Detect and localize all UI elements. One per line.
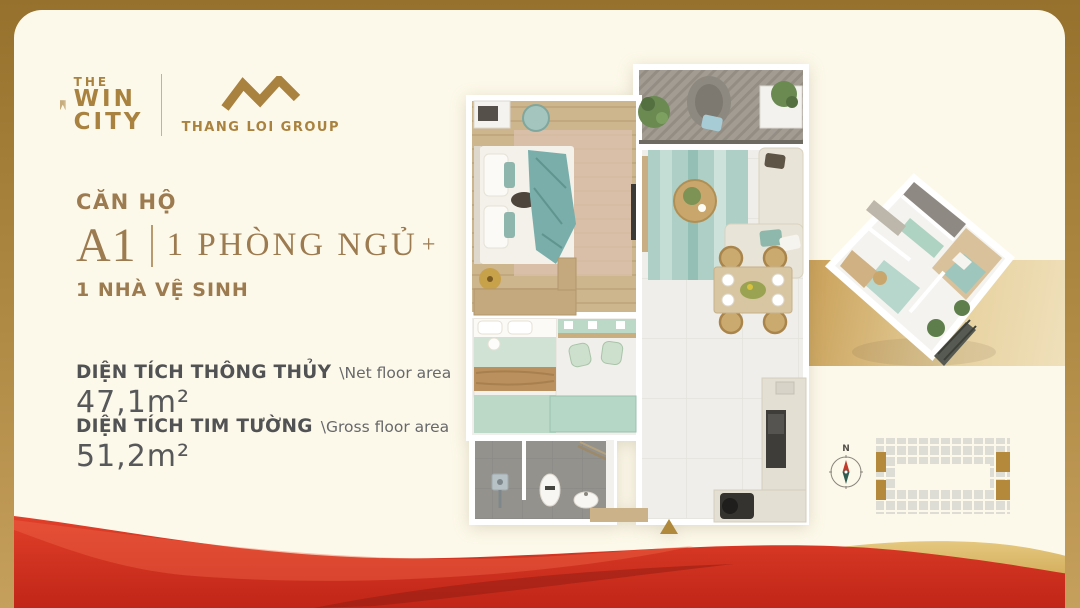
apartment-3d-view xyxy=(814,160,1029,378)
gross-area-value: 51,2m² xyxy=(76,439,449,474)
slide-background: THE WIN CITY THANG LOI GROUP CĂN HỘ A1 1… xyxy=(14,10,1065,608)
thang-loi-logo-text: THANG LOI GROUP xyxy=(182,120,340,135)
unit-bedroom-plus: + xyxy=(422,232,439,259)
net-area-value: 47,1m² xyxy=(76,385,451,420)
win-city-logo-icon xyxy=(60,66,66,144)
unit-category-label: CĂN HỘ xyxy=(76,190,438,214)
highlighted-unit xyxy=(876,480,886,500)
unit-bedroom-label: 1 PHÒNG NGỦ xyxy=(167,227,418,264)
gross-area-block: DIỆN TÍCH TIM TƯỜNG \Gross floor area 51… xyxy=(76,416,449,474)
unit-title-block: CĂN HỘ A1 1 PHÒNG NGỦ + 1 NHÀ VỆ SINH xyxy=(76,190,438,301)
thang-loi-logo: THANG LOI GROUP xyxy=(182,76,340,135)
highlighted-unit xyxy=(996,480,1010,500)
floor-plan-image xyxy=(462,38,810,536)
gross-area-label-vi: DIỆN TÍCH TIM TƯỜNG xyxy=(76,416,313,437)
win-city-logo-text: THE WIN CITY xyxy=(74,76,144,134)
unit-code: A1 xyxy=(76,218,137,273)
net-area-label-en: \Net floor area xyxy=(339,364,451,382)
win-city-line2: WIN xyxy=(74,88,144,111)
highlighted-unit xyxy=(876,452,886,472)
red-ribbon-decoration xyxy=(14,500,1065,608)
highlighted-unit xyxy=(996,452,1010,472)
unit-bathroom-label: 1 NHÀ VỆ SINH xyxy=(76,279,438,301)
net-area-label-vi: DIỆN TÍCH THÔNG THỦY xyxy=(76,362,331,383)
net-area-block: DIỆN TÍCH THÔNG THỦY \Net floor area 47,… xyxy=(76,362,451,420)
win-city-line3: CITY xyxy=(74,111,144,134)
compass-icon: N xyxy=(829,444,863,489)
thang-loi-logo-icon xyxy=(221,76,301,112)
unit-title-divider xyxy=(151,225,153,267)
compass-north-label: N xyxy=(842,444,850,454)
gross-area-label-en: \Gross floor area xyxy=(321,418,449,436)
brand-header: THE WIN CITY THANG LOI GROUP xyxy=(60,55,340,155)
